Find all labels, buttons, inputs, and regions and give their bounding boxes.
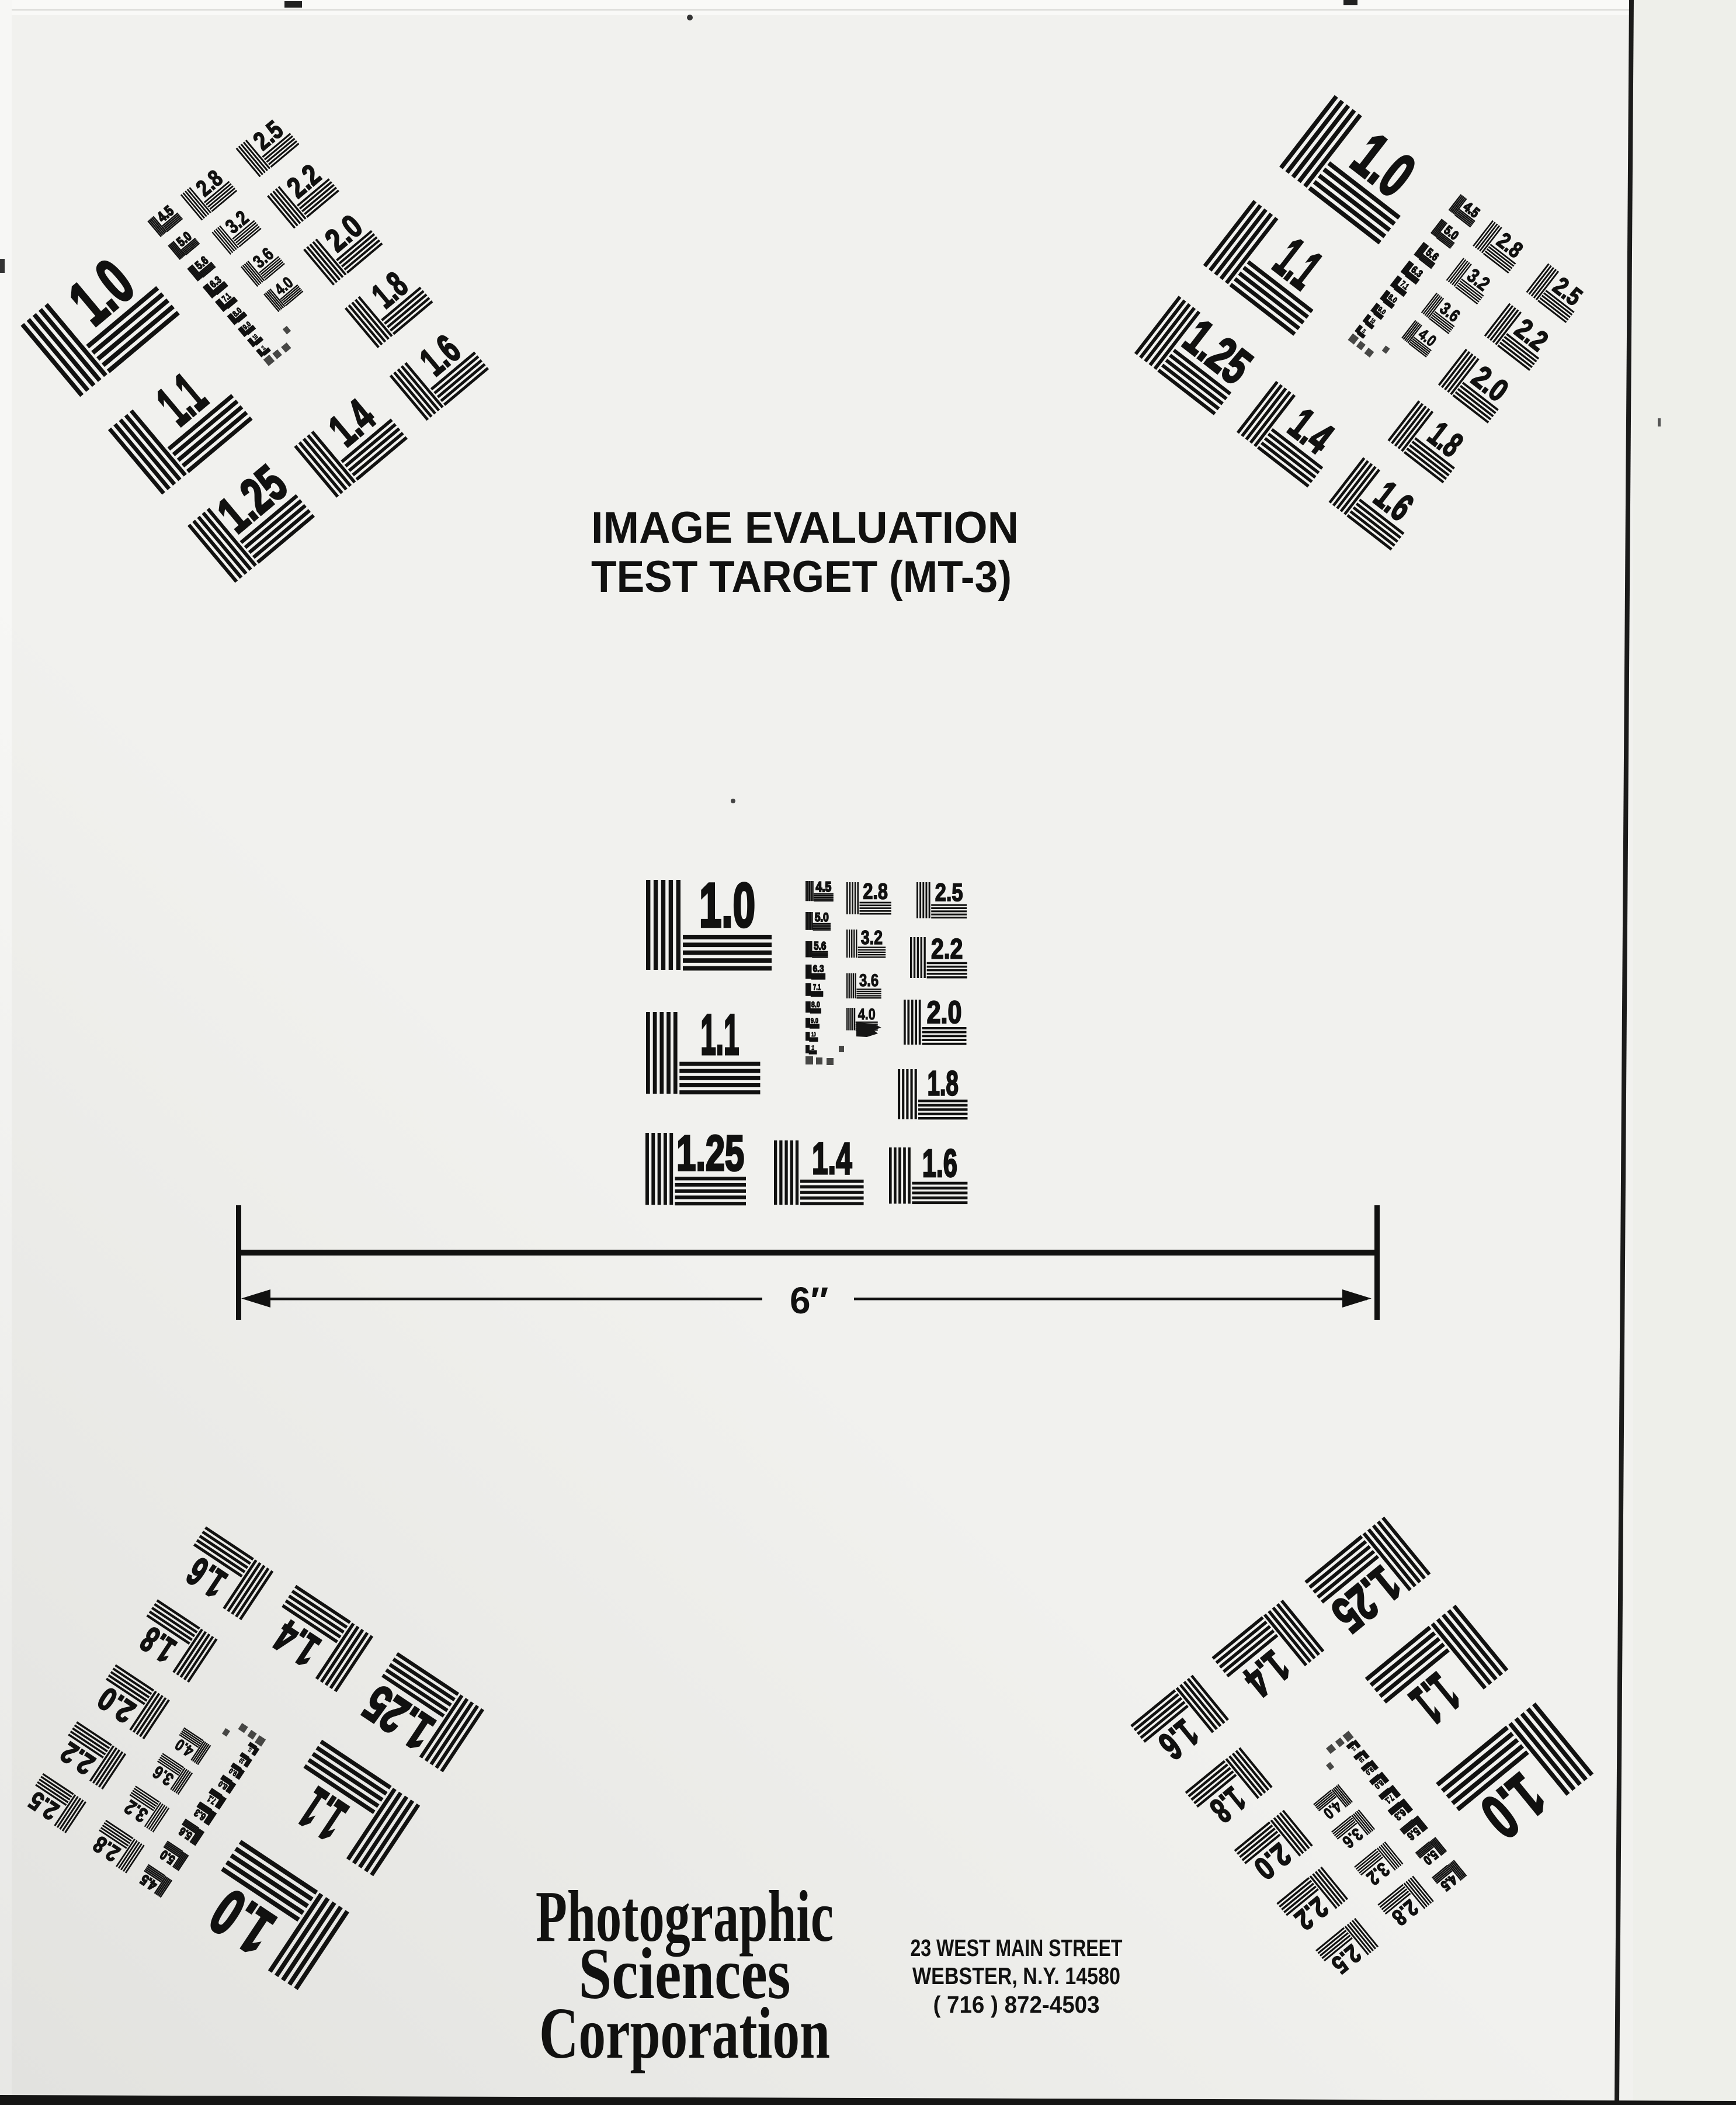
svg-text:IMAGE EVALUATION: IMAGE EVALUATION: [591, 503, 1019, 553]
svg-text:WEBSTER, N.Y. 14580: WEBSTER, N.Y. 14580: [912, 1962, 1120, 1989]
svg-text:TEST TARGET (MT-3): TEST TARGET (MT-3): [591, 552, 1012, 602]
svg-text:23 WEST MAIN STREET: 23 WEST MAIN STREET: [911, 1934, 1123, 1961]
svg-text:( 716 ) 872-4503: ( 716 ) 872-4503: [933, 1991, 1100, 2018]
svg-text:Corporation: Corporation: [539, 1993, 830, 2074]
svg-text:6″: 6″: [790, 1279, 828, 1322]
